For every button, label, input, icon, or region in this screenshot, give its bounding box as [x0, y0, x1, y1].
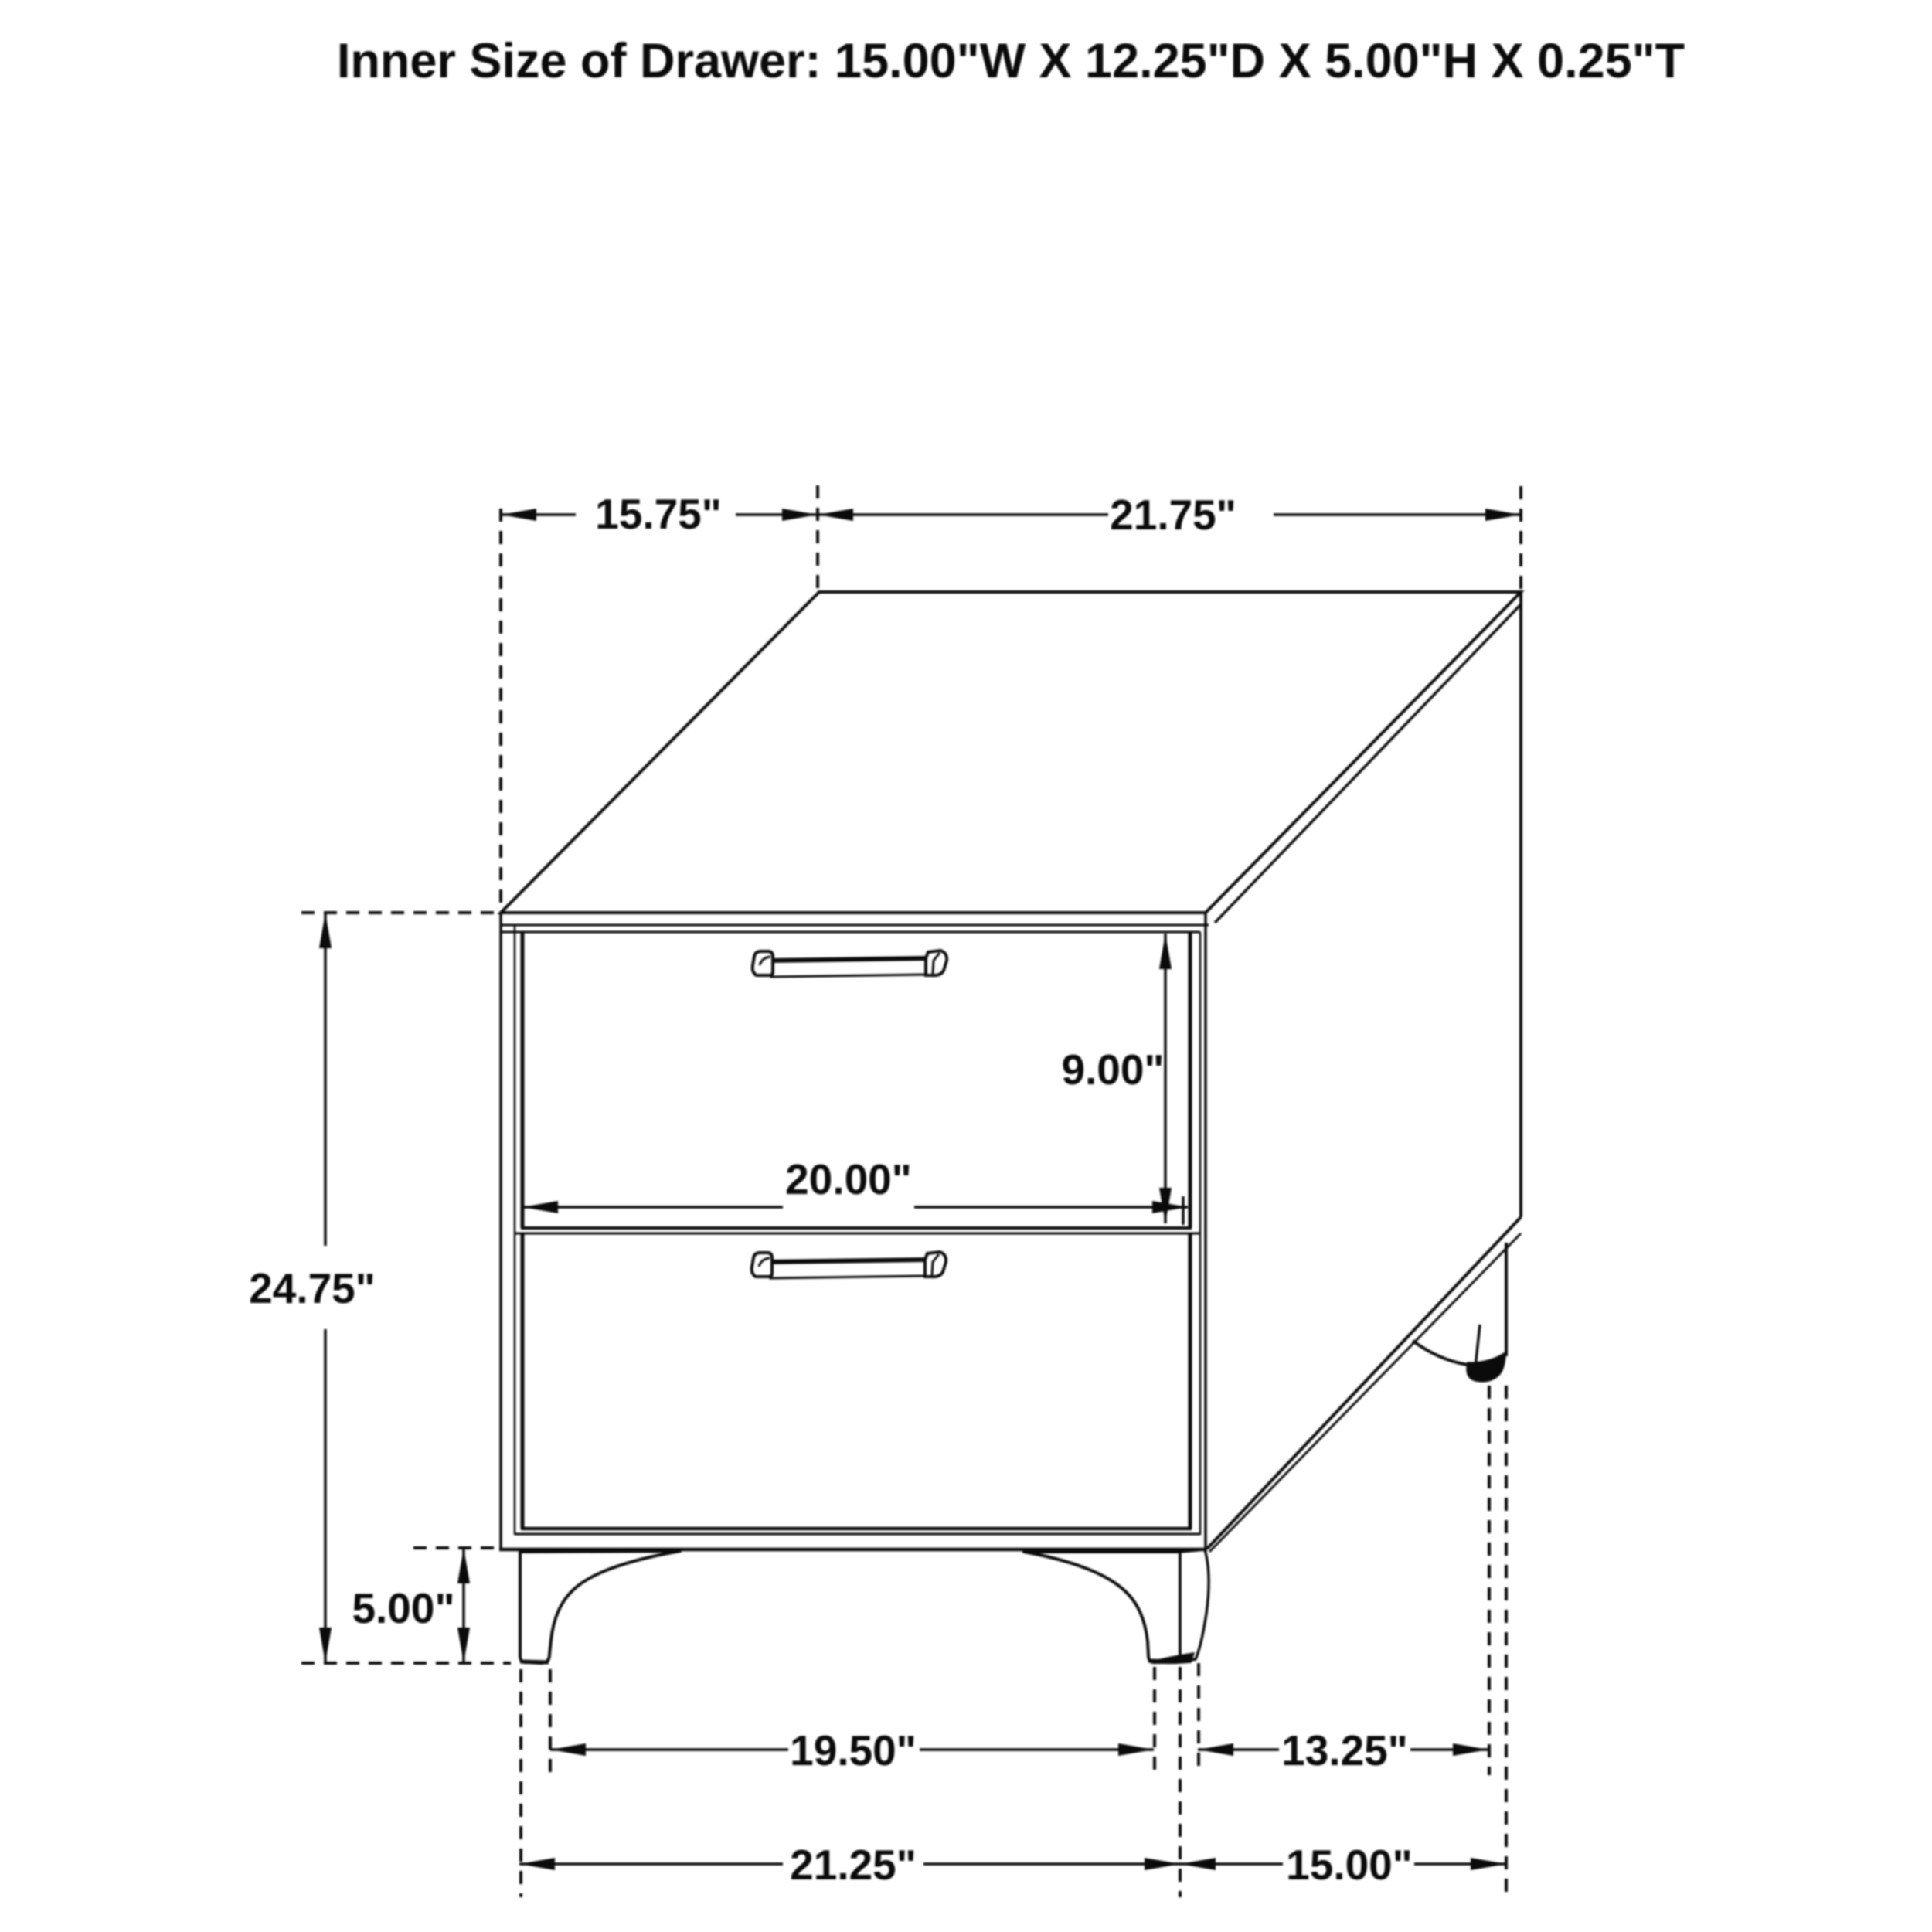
svg-text:24.75": 24.75" [249, 1264, 376, 1312]
svg-text:9.00": 9.00" [1061, 1046, 1164, 1094]
svg-text:21.25": 21.25" [790, 1841, 917, 1889]
svg-text:Inner Size of Drawer: 15.00"W: Inner Size of Drawer: 15.00"W X 12.25"D … [337, 34, 1685, 88]
svg-text:13.25": 13.25" [1281, 1726, 1408, 1774]
svg-text:20.00": 20.00" [785, 1155, 912, 1203]
svg-text:15.00": 15.00" [1286, 1841, 1413, 1889]
svg-text:19.50": 19.50" [790, 1726, 917, 1774]
svg-text:15.75": 15.75" [595, 490, 722, 538]
svg-text:5.00": 5.00" [352, 1584, 454, 1632]
svg-text:21.75": 21.75" [1110, 491, 1236, 539]
